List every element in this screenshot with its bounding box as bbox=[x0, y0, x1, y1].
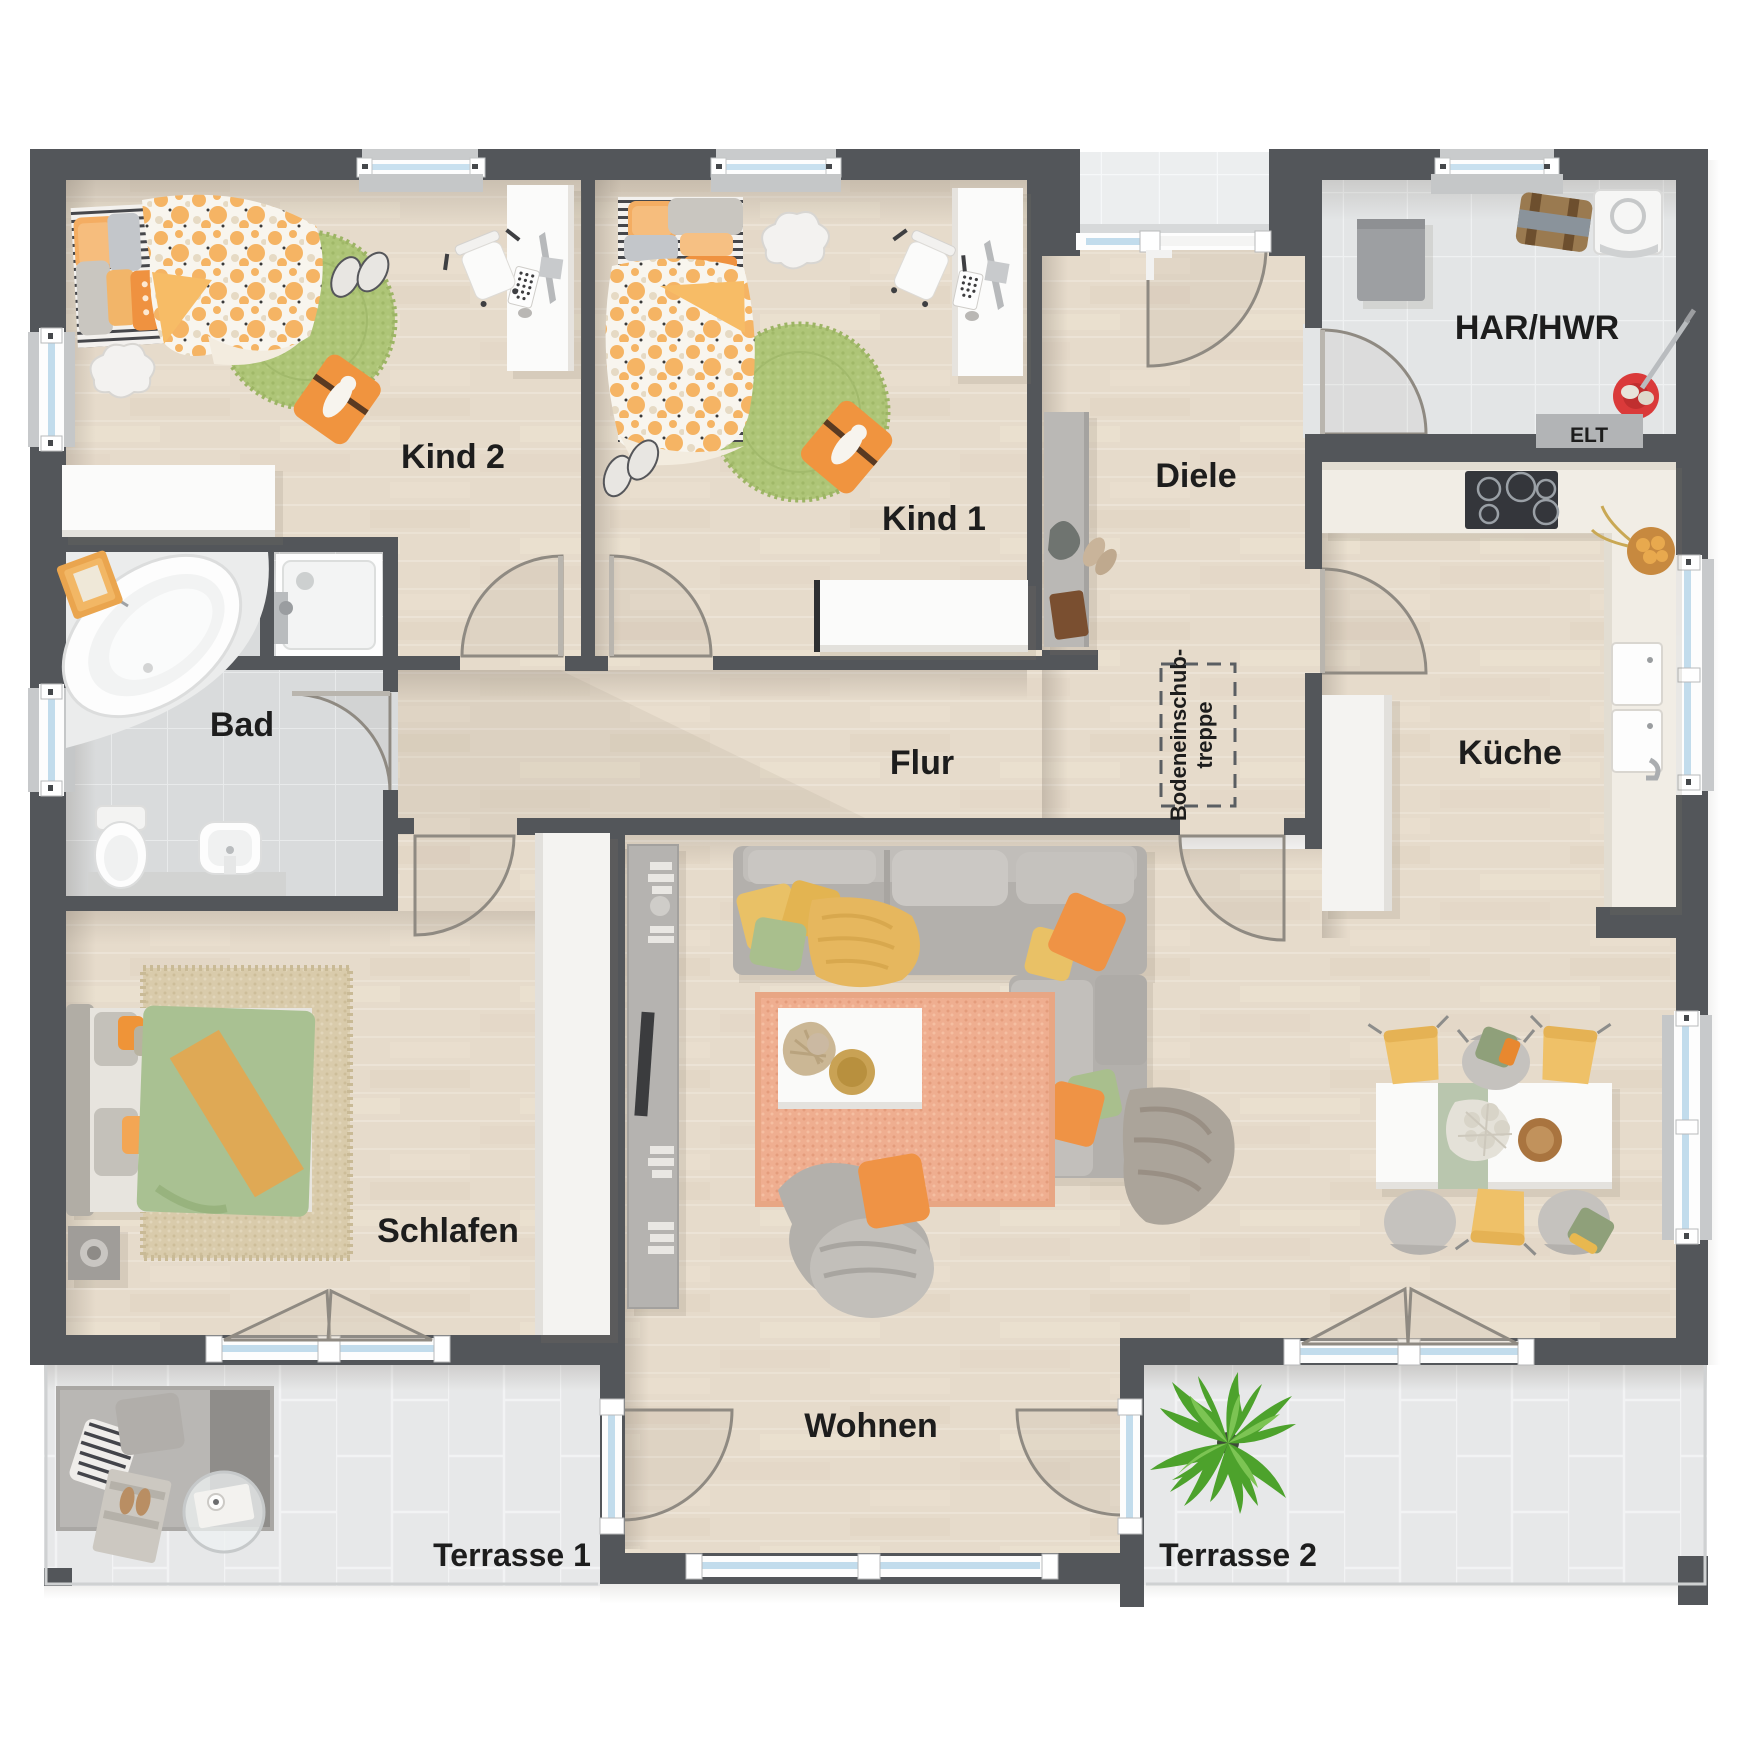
svg-text:Bodeneinschub-: Bodeneinschub- bbox=[1166, 649, 1191, 821]
svg-text:Flur: Flur bbox=[890, 744, 954, 782]
svg-text:Terrasse 1: Terrasse 1 bbox=[433, 1537, 591, 1573]
svg-text:Kind 1: Kind 1 bbox=[882, 500, 986, 538]
svg-text:Diele: Diele bbox=[1155, 457, 1236, 495]
svg-text:Bad: Bad bbox=[210, 706, 274, 744]
svg-text:HAR/HWR: HAR/HWR bbox=[1455, 309, 1619, 347]
svg-text:treppe: treppe bbox=[1192, 701, 1217, 768]
svg-text:Kind 2: Kind 2 bbox=[401, 438, 505, 476]
svg-text:Schlafen: Schlafen bbox=[377, 1212, 519, 1250]
svg-text:ELT: ELT bbox=[1570, 424, 1608, 447]
svg-text:Küche: Küche bbox=[1458, 734, 1562, 772]
svg-text:Wohnen: Wohnen bbox=[804, 1407, 937, 1445]
svg-text:Terrasse 2: Terrasse 2 bbox=[1159, 1537, 1317, 1573]
